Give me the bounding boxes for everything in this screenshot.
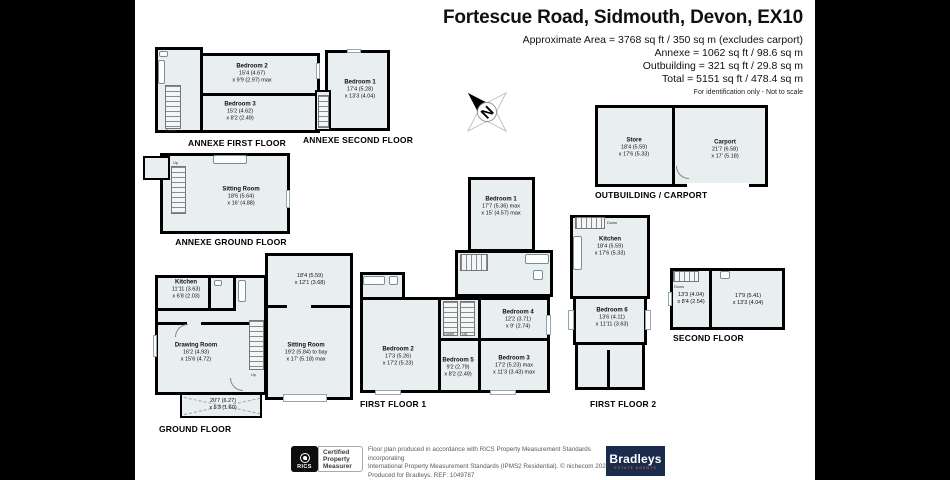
window xyxy=(375,390,401,395)
room-outline xyxy=(575,342,645,390)
floorplan-sheet: Fortescue Road, Sidmouth, Devon, EX10 Ap… xyxy=(0,0,950,480)
bradleys-tagline: ESTATE AGENTS xyxy=(614,466,657,470)
room-dimensions: 16'2 (4.93) xyxy=(175,350,217,357)
window xyxy=(546,315,551,335)
stairs-label: Up xyxy=(462,331,467,336)
page-title: Fortescue Road, Sidmouth, Devon, EX10 xyxy=(443,7,803,29)
room-dimensions: x 5'3 (1.60) xyxy=(209,405,236,412)
bath-fixture xyxy=(238,280,246,302)
room-label: Sitting Room19'2 (5.84) to bayx 17' (5.1… xyxy=(285,343,328,364)
room-label: Kitchen11'11 (3.63)x 6'8 (2.03) xyxy=(172,280,200,301)
interior-wall xyxy=(441,338,479,341)
stairs xyxy=(575,217,605,229)
room-dimensions: x 13'3 (4.04) xyxy=(733,300,763,307)
stairs-label: Down xyxy=(607,220,617,225)
room-dimensions: 17'9 (5.41) xyxy=(733,293,763,300)
plan-label: OUTBUILDING / CARPORT xyxy=(595,190,707,200)
room-label: Sitting Room18'6 (5.64)x 16' (4.88) xyxy=(222,187,259,208)
counter-fixture xyxy=(573,236,582,270)
room-dimensions: x 8'4 (2.54) xyxy=(677,299,704,306)
floorplan-disclaimer: Floor plan produced in accordance with R… xyxy=(368,446,618,480)
room-name: Store xyxy=(619,138,649,145)
room-label: Store18'4 (5.59)x 17'6 (5.33) xyxy=(619,138,649,159)
certified-property-measurer-badge: Certified Property Measurer xyxy=(318,446,363,472)
window xyxy=(316,63,320,79)
room-dimensions: 15'2 (4.62) xyxy=(224,109,255,116)
room-dimensions: 11'11 (3.63) xyxy=(172,287,200,294)
fireplace-fixture xyxy=(213,155,247,164)
room-name: Bedroom 6 xyxy=(596,308,629,315)
room-name: Bedroom 4 xyxy=(502,310,533,317)
rics-wordmark: RICS xyxy=(297,464,312,470)
room-dimensions: x 9'9 (2.97) max xyxy=(232,78,271,85)
room-dimensions: x 17'6 (5.33) xyxy=(619,152,649,159)
room-name: Sitting Room xyxy=(222,187,259,194)
stairs-label: Up xyxy=(251,372,256,377)
room-dimensions: x 16' (4.88) xyxy=(222,201,259,208)
interior-wall xyxy=(208,277,211,310)
room-label: Bedroom 217'3 (5.26)x 17'2 (5.23) xyxy=(382,347,413,368)
room-dimensions: 17'7 (5.36) max xyxy=(481,204,520,211)
room-dimensions: 19'2 (5.84) to bay xyxy=(285,350,328,357)
room-label: Kitchen18'4 (5.59)x 17'6 (5.33) xyxy=(595,237,625,258)
room-dimensions: 12'2 (3.71) xyxy=(502,317,533,324)
room-dimensions: 18'4 (5.59) xyxy=(619,145,649,152)
plan-label: SECOND FLOOR xyxy=(673,333,744,343)
room-label: 17'9 (5.41)x 13'3 (4.04) xyxy=(733,293,763,307)
stairs xyxy=(460,254,488,271)
plan-label: FIRST FLOOR 1 xyxy=(360,399,426,409)
room-name: Bedroom 3 xyxy=(224,102,255,109)
interior-wall xyxy=(233,277,236,310)
room-outline xyxy=(143,156,170,180)
room-label: 20'7 (6.27)x 5'3 (1.60) xyxy=(209,398,236,412)
rics-crest-icon xyxy=(300,453,310,463)
room-name: Kitchen xyxy=(172,280,200,287)
room-label: Bedroom 317'2 (5.23) maxx 11'3 (3.43) ma… xyxy=(493,356,535,377)
window xyxy=(490,390,516,395)
room-name: Bedroom 2 xyxy=(232,64,271,71)
room-name: Kitchen xyxy=(595,237,625,244)
room-name: Carport xyxy=(711,140,738,147)
room-label: Bedroom 315'2 (4.62)x 8'2 (2.49) xyxy=(224,102,255,123)
area-summary-line: Approximate Area = 3768 sq ft / 350 sq m… xyxy=(443,34,803,47)
badge-line: Property xyxy=(323,456,362,463)
room-name: Drawing Room xyxy=(175,343,217,350)
plan-label: FIRST FLOOR 2 xyxy=(590,399,656,409)
interior-wall xyxy=(607,350,610,388)
area-summary-line: Annexe = 1062 sq ft / 98.6 sq m xyxy=(443,47,803,60)
room-dimensions: x 17' (5.18) max xyxy=(285,357,328,364)
room-label: Carport21'7 (6.58)x 17' (5.18) xyxy=(711,140,738,161)
interior-wall xyxy=(481,338,548,341)
stairs-label: Down xyxy=(444,331,454,336)
bath-fixture xyxy=(363,276,385,285)
room-dimensions: x 12'1 (3.68) xyxy=(295,280,325,287)
compass-north-icon: N xyxy=(459,84,515,140)
rics-logo: RICS xyxy=(291,446,318,472)
plan-label: ANNEXE SECOND FLOOR xyxy=(303,135,413,145)
interior-wall xyxy=(157,308,236,311)
interior-wall xyxy=(203,93,320,96)
stairs-label: Down xyxy=(674,284,684,289)
plan-label: ANNEXE GROUND FLOOR xyxy=(175,237,286,247)
room-dimensions: 18'4 (5.59) xyxy=(295,273,325,280)
room-dimensions: 21'7 (6.58) xyxy=(711,147,738,154)
fixture xyxy=(720,271,730,279)
room-dimensions: x 15'6 (4.72) xyxy=(175,357,217,364)
bradleys-logo: Bradleys ESTATE AGENTS xyxy=(606,446,665,476)
room-name: Bedroom 1 xyxy=(481,197,520,204)
interior-wall xyxy=(267,305,287,308)
room-dimensions: 18'6 (5.64) xyxy=(222,194,259,201)
room-dimensions: x 9' (2.74) xyxy=(502,324,533,331)
room-label: Bedroom 117'7 (5.36) maxx 15' (4.57) max xyxy=(481,197,520,218)
sink-fixture xyxy=(214,280,222,286)
stairs-label: Down xyxy=(166,128,176,133)
room-name: Bedroom 3 xyxy=(493,356,535,363)
stairs xyxy=(673,271,699,282)
room-dimensions: 13'3 (4.04) xyxy=(677,292,704,299)
carport-opening xyxy=(687,183,749,188)
badge-line: Certified xyxy=(323,449,362,456)
room-dimensions: x 11'11 (3.63) xyxy=(596,322,629,329)
window xyxy=(153,335,157,357)
room-label: 18'4 (5.59)x 12'1 (3.68) xyxy=(295,273,325,287)
room-label: Bedroom 215'4 (4.67)x 9'9 (2.97) max xyxy=(232,64,271,85)
disclaimer-line: Produced for Bradleys. REF: 1049787 xyxy=(368,472,618,480)
room-dimensions: x 13'3 (4.04) xyxy=(344,94,375,101)
stairs xyxy=(171,166,186,214)
room-name: Bedroom 1 xyxy=(344,80,375,87)
room-dimensions: x 15' (4.57) max xyxy=(481,211,520,218)
plan-label: ANNEXE FIRST FLOOR xyxy=(188,138,286,148)
plan-label: GROUND FLOOR xyxy=(159,424,231,434)
bay-window xyxy=(645,310,651,330)
room-dimensions: 18'4 (5.59) xyxy=(595,244,625,251)
room-dimensions: x 11'3 (3.43) max xyxy=(493,370,535,377)
header-block: Fortescue Road, Sidmouth, Devon, EX10 Ap… xyxy=(443,7,803,96)
shower-fixture xyxy=(533,270,543,280)
area-summary-line: Outbuilding = 321 sq ft / 29.8 sq m xyxy=(443,60,803,73)
room-dimensions: x 8'2 (2.49) xyxy=(442,372,473,379)
room-label: Drawing Room16'2 (4.93)x 15'6 (4.72) xyxy=(175,343,217,364)
interior-wall xyxy=(311,305,353,308)
room-dimensions: x 17'2 (5.23) xyxy=(382,361,413,368)
room-dimensions: x 8'2 (2.49) xyxy=(224,116,255,123)
room-label: Bedroom 59'2 (2.79)x 8'2 (2.49) xyxy=(442,358,473,379)
room-dimensions: 20'7 (6.27) xyxy=(209,398,236,405)
room-name: Sitting Room xyxy=(285,343,328,350)
room-label: Bedroom 412'2 (3.71)x 9' (2.74) xyxy=(502,310,533,331)
room-dimensions: 15'4 (4.67) xyxy=(232,71,271,78)
plan-page: Fortescue Road, Sidmouth, Devon, EX10 Ap… xyxy=(135,0,815,480)
room-dimensions: 17'3 (5.26) xyxy=(382,354,413,361)
bay-window xyxy=(283,394,327,402)
bradleys-wordmark: Bradleys xyxy=(609,453,661,465)
bay-window xyxy=(568,310,574,330)
room-dimensions: x 17'6 (5.33) xyxy=(595,251,625,258)
interior-wall xyxy=(438,300,441,391)
bath-fixture xyxy=(158,60,165,84)
toilet-fixture xyxy=(159,51,168,57)
room-label: 13'3 (4.04)x 8'4 (2.54) xyxy=(677,292,704,306)
room-dimensions: x 17' (5.18) xyxy=(711,154,738,161)
room-name: Bedroom 5 xyxy=(442,358,473,365)
badge-line: Measurer xyxy=(323,463,362,470)
room-dimensions: 13'6 (4.11) xyxy=(596,315,629,322)
window xyxy=(347,49,361,53)
room-dimensions: 17'2 (5.23) max xyxy=(493,363,535,370)
shower-fixture xyxy=(389,276,398,285)
interior-wall xyxy=(478,300,481,391)
room-dimensions: 9'2 (2.79) xyxy=(442,365,473,372)
room-dimensions: 17'4 (5.28) xyxy=(344,87,375,94)
disclaimer-line: International Property Measurement Stand… xyxy=(368,463,618,472)
window xyxy=(286,190,290,208)
room-label: Bedroom 613'6 (4.11)x 11'11 (3.63) xyxy=(596,308,629,329)
room-label: Bedroom 117'4 (5.28)x 13'3 (4.04) xyxy=(344,80,375,101)
stairs xyxy=(318,95,329,128)
stairs xyxy=(165,85,181,129)
stairs-label: Up xyxy=(173,160,178,165)
stairs xyxy=(249,320,264,370)
room-name: Bedroom 2 xyxy=(382,347,413,354)
disclaimer-line: Floor plan produced in accordance with R… xyxy=(368,446,618,463)
window xyxy=(668,292,672,306)
room-dimensions: x 6'8 (2.03) xyxy=(172,294,200,301)
bath-fixture xyxy=(525,254,549,264)
